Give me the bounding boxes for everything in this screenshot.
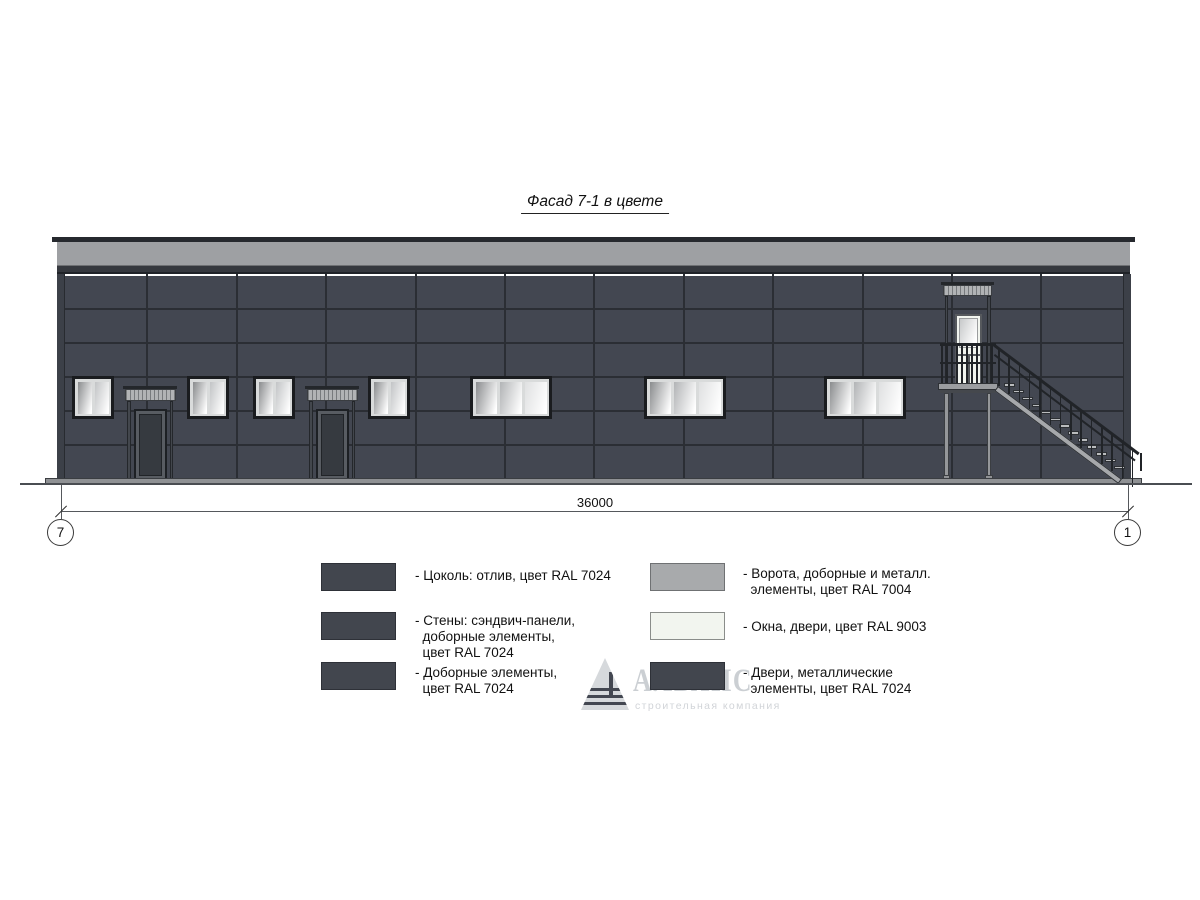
landing-rail-mid — [940, 362, 996, 364]
window-pane — [525, 382, 547, 414]
window — [470, 376, 552, 419]
stair-baluster — [1091, 418, 1093, 456]
stair-baluster — [1101, 426, 1103, 464]
stair-tread — [1114, 466, 1125, 470]
watermark-tagline: строительная компания — [635, 700, 781, 712]
window-pane — [500, 382, 522, 414]
landing-baluster — [941, 344, 943, 386]
landing-baluster — [981, 344, 983, 386]
landing-rail-top — [940, 343, 996, 346]
exit-canopy — [943, 285, 992, 296]
legend-label-gates: - Ворота, доборные и металл. элементы, ц… — [743, 566, 931, 598]
drawing-title: Фасад 7-1 в цвете — [521, 193, 669, 214]
fascia-band — [57, 242, 1130, 267]
landing-post-base — [985, 475, 993, 479]
window-pane — [674, 382, 696, 414]
canopy-post — [127, 401, 131, 481]
stair-baluster — [1019, 364, 1021, 402]
window-pane — [276, 382, 290, 414]
stair-baluster — [1122, 441, 1124, 479]
legend-swatch-windows — [650, 612, 725, 640]
legend-label-windows: - Окна, двери, цвет RAL 9003 — [743, 619, 926, 635]
canopy-post — [309, 401, 313, 481]
door-leaf — [321, 414, 344, 476]
panel-joint-horizontal — [57, 308, 1130, 310]
stair-rail-end-post — [1140, 453, 1142, 471]
window-pane — [95, 382, 109, 414]
window — [187, 376, 229, 419]
window-pane — [854, 382, 876, 414]
landing-post-base — [943, 475, 951, 479]
panel-joint-horizontal — [57, 444, 1130, 446]
stair-tread — [1078, 438, 1089, 442]
door-leaf — [139, 414, 162, 476]
stair-baluster — [1039, 379, 1041, 417]
stair-baluster — [1070, 402, 1072, 440]
window — [644, 376, 726, 419]
stair-baluster — [998, 348, 1000, 386]
window-pane — [476, 382, 498, 414]
landing-baluster — [951, 344, 953, 386]
landing-baluster — [991, 344, 993, 386]
grid-extension-right — [1128, 485, 1129, 519]
window-pane — [78, 382, 92, 414]
window — [368, 376, 410, 419]
door-metal — [316, 409, 349, 481]
legend-swatch-gates — [650, 563, 725, 591]
window-pane — [879, 382, 901, 414]
window — [72, 376, 114, 419]
stair-baluster — [1132, 449, 1134, 487]
exit-canopy-post — [987, 296, 991, 386]
window-pane — [374, 382, 388, 414]
landing-baluster — [971, 344, 973, 386]
grid-bubble-7: 7 — [47, 519, 74, 546]
legend-label-walls: - Стены: сэндвич-панели, доборные элемен… — [415, 613, 575, 661]
door-metal — [134, 409, 167, 481]
stair-baluster — [1111, 433, 1113, 471]
landing-baluster — [966, 344, 968, 386]
legend-swatch-doors — [650, 662, 725, 690]
fascia-trim — [57, 266, 1130, 274]
stair-baluster — [1080, 410, 1082, 448]
window-pane — [210, 382, 224, 414]
legend-swatch-plinth — [321, 563, 396, 591]
landing-baluster — [946, 344, 948, 386]
stair-baluster — [1008, 356, 1010, 394]
pyramid-logo-icon — [581, 658, 629, 710]
landing-baluster — [956, 344, 958, 386]
stair-tread — [1022, 397, 1033, 401]
stair-baluster — [1060, 395, 1062, 433]
canopy — [307, 389, 358, 401]
dimension-line — [61, 511, 1128, 512]
landing-baluster — [986, 344, 988, 386]
stair-baluster — [1050, 387, 1052, 425]
window — [253, 376, 295, 419]
legend-swatch-walls — [321, 612, 396, 640]
legend-label-trim: - Доборные элементы, цвет RAL 7024 — [415, 665, 557, 697]
window — [824, 376, 906, 419]
landing-baluster — [976, 344, 978, 386]
window-pane — [699, 382, 721, 414]
legend-swatch-trim — [321, 662, 396, 690]
canopy-post — [170, 401, 174, 481]
window-pane — [259, 382, 273, 414]
dimension-value: 36000 — [545, 495, 645, 510]
legend-label-doors: - Двери, металлические элементы, цвет RA… — [743, 665, 911, 697]
window-pane — [830, 382, 852, 414]
building-facade: АЛЬЯНС строительная компания — [57, 237, 1130, 483]
grid-bubble-1: 1 — [1114, 519, 1141, 546]
ground-line — [20, 483, 1192, 485]
landing-baluster — [961, 344, 963, 386]
stair-baluster — [1029, 371, 1031, 409]
canopy-post — [352, 401, 356, 481]
exit-door-mullion-v — [968, 354, 970, 384]
landing-post — [944, 393, 949, 478]
canopy — [125, 389, 176, 401]
window-pane — [650, 382, 672, 414]
exit-door-white — [955, 314, 982, 386]
landing-post — [987, 393, 992, 478]
facade-drawing-sheet: Фасад 7-1 в цвете АЛЬЯНС строительная ко… — [0, 0, 1200, 900]
corner-trim-left — [57, 274, 65, 478]
legend-label-plinth: - Цоколь: отлив, цвет RAL 7024 — [415, 568, 611, 584]
grid-extension-left — [61, 485, 62, 519]
window-pane — [193, 382, 207, 414]
window-pane — [391, 382, 405, 414]
